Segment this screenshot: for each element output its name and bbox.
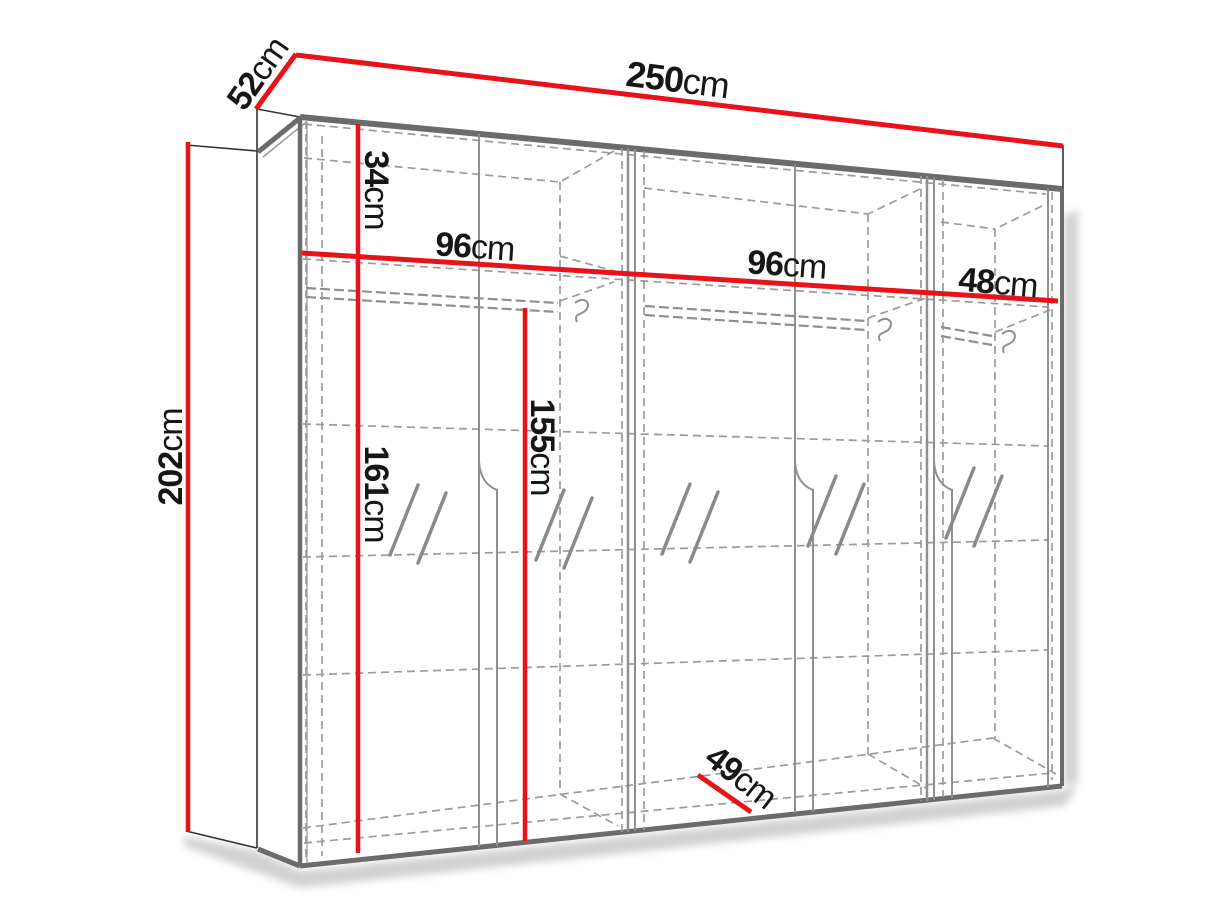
dim-label-top-compartment-height: 34cm [357,150,395,229]
dim-label-right-section-width: 48cm [957,261,1039,306]
dim-label-left-interior-height: 161cm [357,445,395,542]
dim-label-total-height: 202cm [152,408,190,505]
dim-label-middle-section-width: 96cm [746,243,828,286]
dim-label-hanging-space-height: 155cm [523,398,561,495]
wardrobe-dimension-diagram: 250cm 52cm 202cm 34cm 96cm 96cm 48cm 161… [0,0,1214,911]
diagram-canvas: 250cm 52cm 202cm 34cm 96cm 96cm 48cm 161… [0,0,1214,911]
dim-label-left-section-width: 96cm [434,225,516,268]
